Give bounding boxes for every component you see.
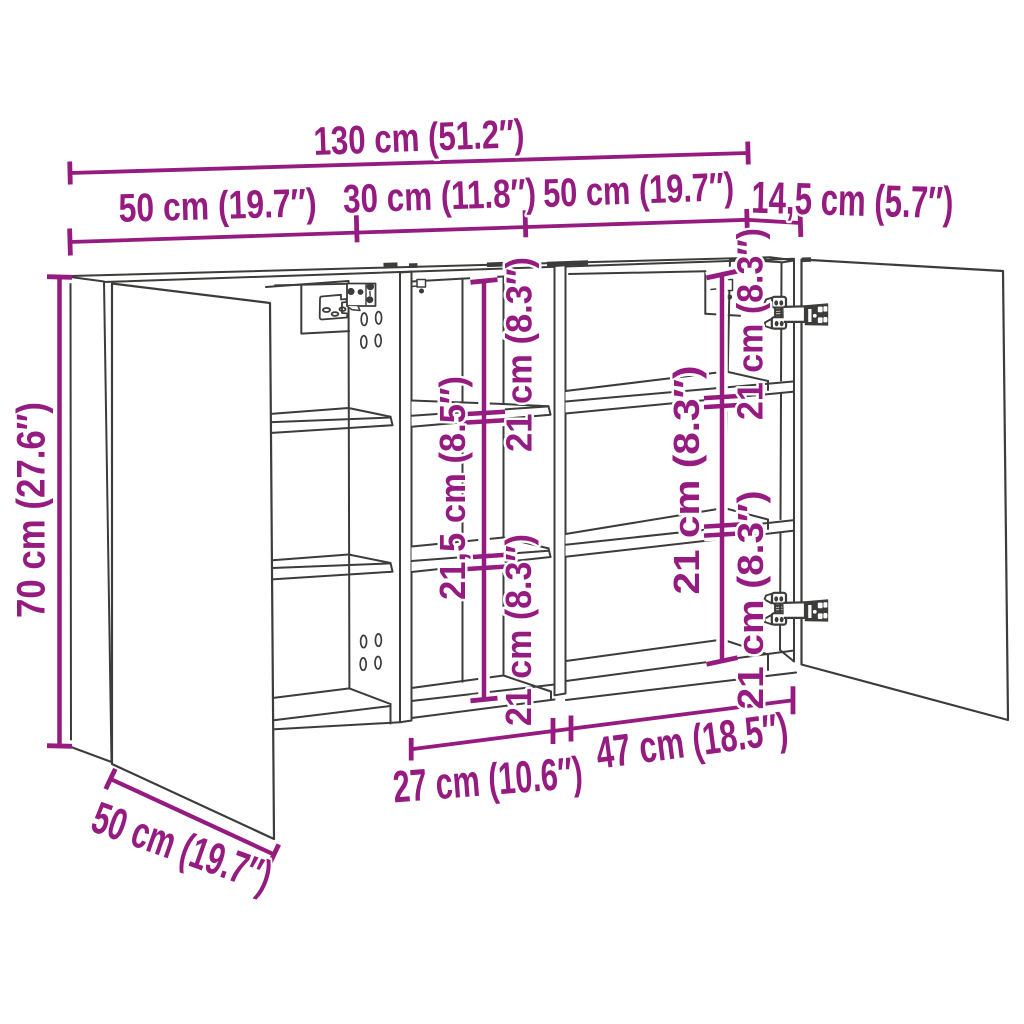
svg-text:21 cm (8.3″): 21 cm (8.3″) (730, 491, 771, 710)
svg-text:130 cm (51.2″): 130 cm (51.2″) (313, 112, 526, 164)
svg-text:30 cm (11.8″): 30 cm (11.8″) (342, 171, 536, 221)
svg-text:21 cm (8.3″): 21 cm (8.3″) (498, 534, 539, 726)
svg-text:21,5 cm (8.5″): 21,5 cm (8.5″) (432, 376, 473, 600)
svg-text:21 cm (8.3″): 21 cm (8.3″) (666, 366, 707, 595)
svg-text:21 cm (8.3″): 21 cm (8.3″) (499, 257, 540, 452)
svg-text:21 cm (8.3″): 21 cm (8.3″) (730, 228, 771, 420)
svg-text:50 cm (19.7″): 50 cm (19.7″) (542, 165, 734, 216)
svg-text:70 cm (27.6″): 70 cm (27.6″) (10, 402, 54, 618)
svg-text:14,5 cm (5.7″): 14,5 cm (5.7″) (751, 172, 954, 229)
svg-text:50 cm (19.7″): 50 cm (19.7″) (118, 181, 317, 231)
